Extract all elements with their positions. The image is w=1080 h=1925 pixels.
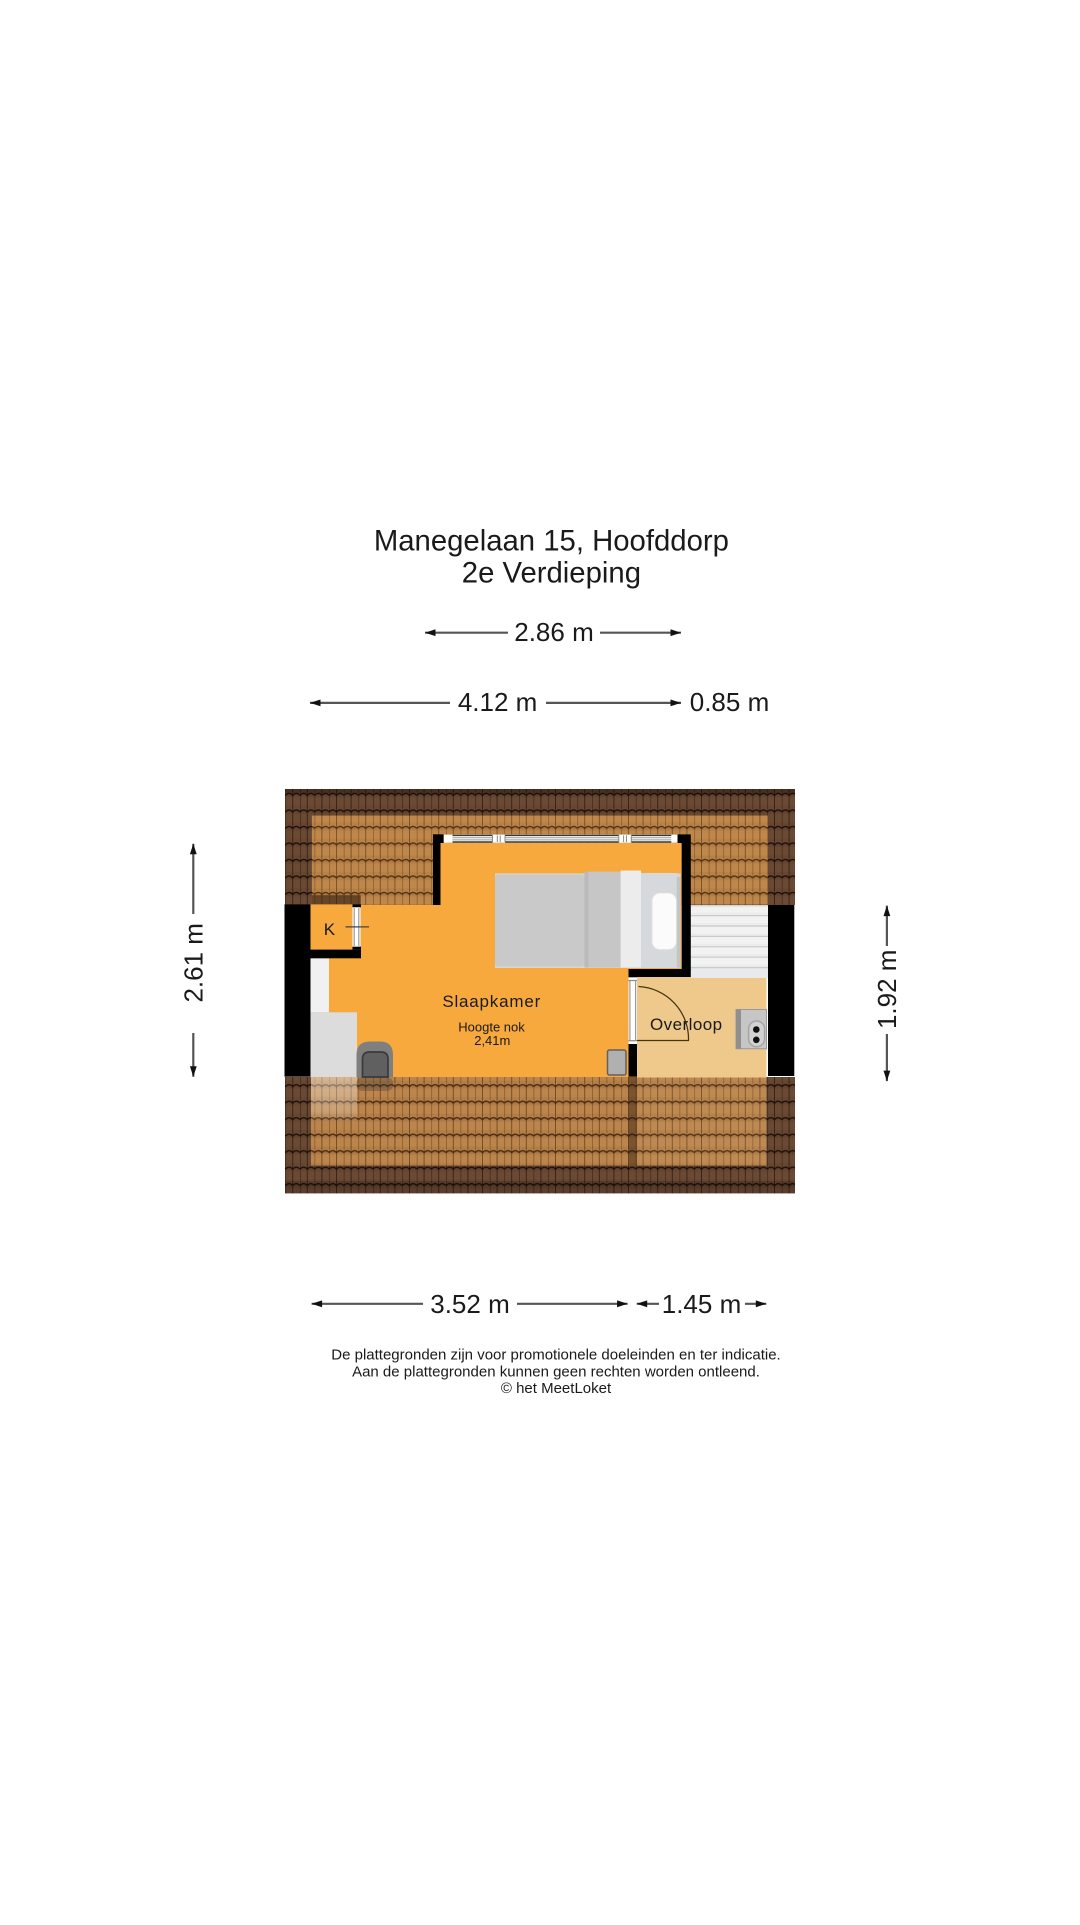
svg-text:Aan de plattegronden kunnen ge: Aan de plattegronden kunnen geen rechten…: [352, 1364, 760, 1381]
svg-text:2e Verdieping: 2e Verdieping: [462, 557, 641, 590]
svg-text:Slaapkamer: Slaapkamer: [442, 992, 541, 1011]
svg-text:2.61 m: 2.61 m: [179, 923, 209, 1003]
svg-text:4.12 m: 4.12 m: [458, 687, 538, 717]
svg-text:© het MeetLoket: © het MeetLoket: [501, 1380, 612, 1397]
svg-text:De plattegronden zijn voor pro: De plattegronden zijn voor promotionele …: [331, 1347, 780, 1364]
svg-text:3.52 m: 3.52 m: [430, 1289, 510, 1319]
svg-text:0.85 m: 0.85 m: [690, 687, 770, 717]
svg-text:Overloop: Overloop: [650, 1015, 723, 1034]
svg-text:Manegelaan 15, Hoofddorp: Manegelaan 15, Hoofddorp: [374, 525, 729, 558]
svg-text:2.86 m: 2.86 m: [514, 617, 594, 647]
svg-text:2,41m: 2,41m: [474, 1033, 510, 1048]
svg-text:K: K: [324, 920, 336, 939]
svg-text:1.92 m: 1.92 m: [872, 950, 902, 1030]
svg-text:1.45 m: 1.45 m: [662, 1289, 742, 1319]
